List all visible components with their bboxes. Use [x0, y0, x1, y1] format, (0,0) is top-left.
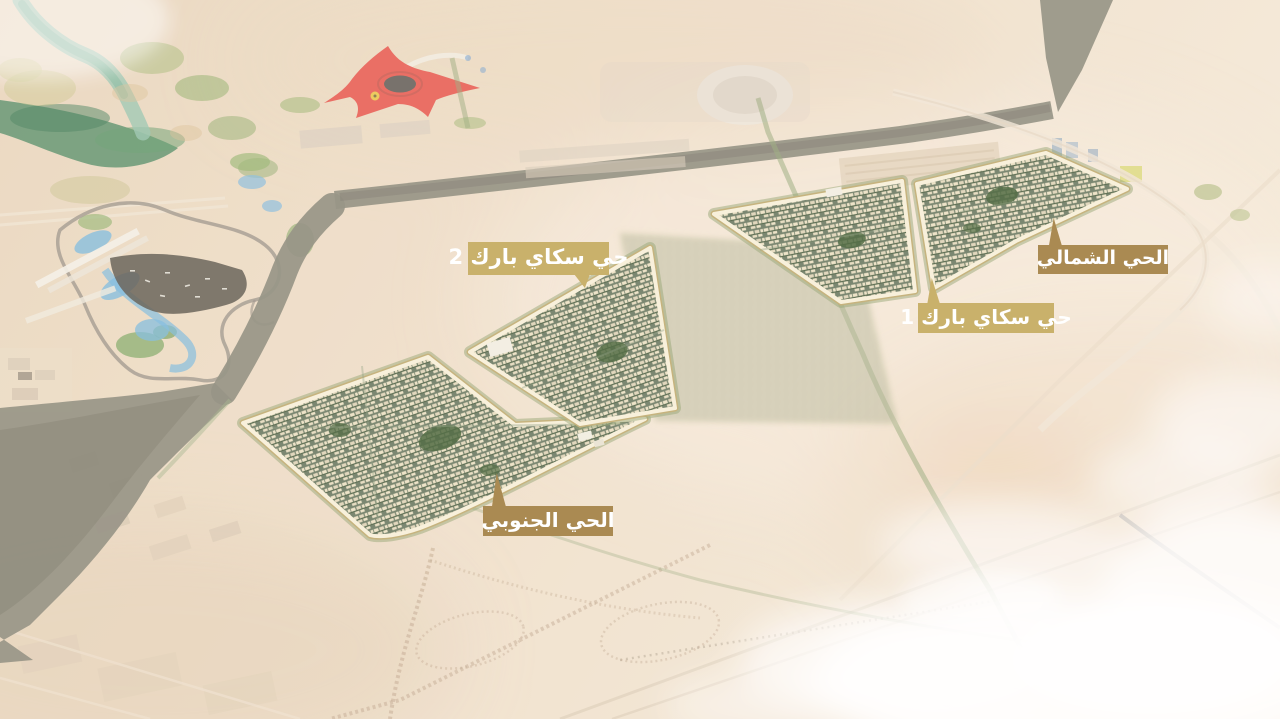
district-label-southern[interactable]: الحي الجنوبي: [483, 506, 613, 536]
district-label-text: الحي الشمالي: [1037, 249, 1169, 268]
district-label-text: الحي الجنوبي: [481, 510, 614, 530]
aerial-map: [0, 0, 1280, 719]
masterplan-map: حي سكاي بارك 2 الحي الشمالي حي سكاي بارك…: [0, 0, 1280, 719]
district-label-sky-park-2[interactable]: حي سكاي بارك 2: [468, 242, 609, 275]
haze-overlay-top: [0, 0, 1280, 719]
district-label-text: حي سكاي بارك 2: [448, 247, 628, 268]
district-label-northern[interactable]: الحي الشمالي: [1038, 245, 1168, 274]
district-label-sky-park-1[interactable]: حي سكاي بارك 1: [918, 303, 1054, 333]
district-label-text: حي سكاي بارك 1: [900, 307, 1071, 327]
